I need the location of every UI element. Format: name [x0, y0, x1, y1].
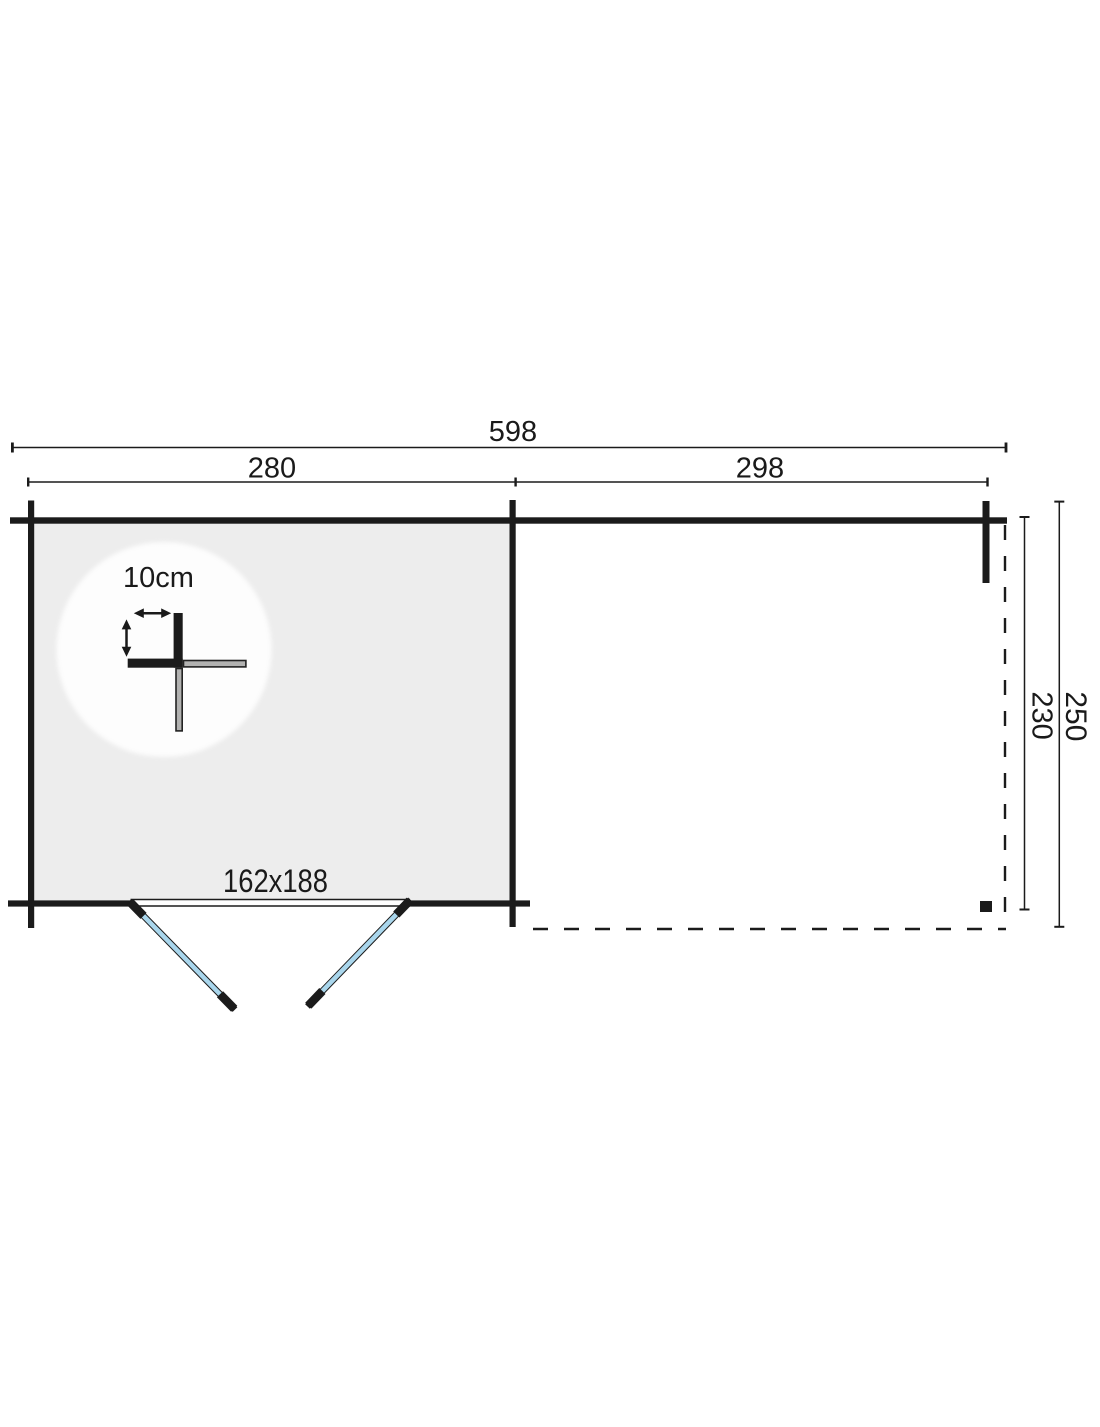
svg-text:250: 250: [1059, 691, 1092, 741]
svg-text:280: 280: [248, 453, 296, 485]
svg-text:162x188: 162x188: [223, 863, 328, 899]
svg-text:598: 598: [489, 416, 537, 448]
svg-text:298: 298: [736, 453, 784, 485]
svg-text:10cm: 10cm: [123, 562, 194, 594]
svg-text:230: 230: [1025, 691, 1057, 739]
